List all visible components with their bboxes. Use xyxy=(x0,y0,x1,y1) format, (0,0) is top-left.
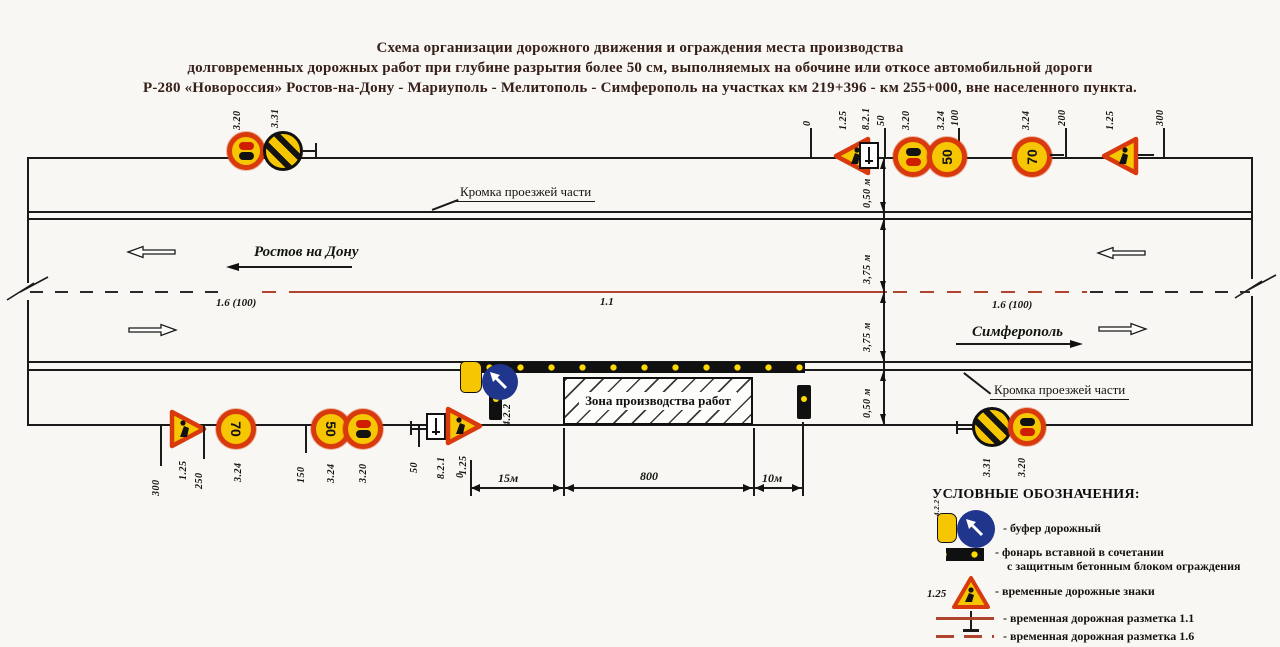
direction-arrow-rostov-head xyxy=(226,263,239,271)
scheme-title-line2: долговременных дорожных работ при глубин… xyxy=(0,60,1280,77)
lantern-post-right xyxy=(797,385,811,419)
kromka-top-line-2 xyxy=(27,218,1253,220)
sign-post-bracket-tr2 xyxy=(1138,154,1154,156)
legend-item-marking-16-text: - временная дорожная разметка 1.6 xyxy=(1003,629,1194,644)
sign-label-bl-8-2-1: 8.2.1 xyxy=(436,449,447,479)
direction-label-simferopol: Симферополь xyxy=(972,324,1063,341)
road-left-border-upper xyxy=(27,157,29,283)
plate-8-2-1-icon-bl xyxy=(426,413,446,440)
sign-label-tr-8-2-1: 8.2.1 xyxy=(861,100,872,130)
station-label-bottom-300: 300 xyxy=(151,466,162,496)
station-label-top-0: 0 xyxy=(802,104,813,126)
legend-marking-1-1-sample xyxy=(936,617,994,620)
sign-3-31-end-restrictions-icon-br xyxy=(972,407,1012,447)
sign-3-20-no-overtaking-icon-br xyxy=(1008,408,1046,446)
plan-dim-label-15m: 15м xyxy=(498,471,518,486)
legend-item-marking-11-text: - временная дорожная разметка 1.1 xyxy=(1003,611,1194,626)
direction-arrow-rostov-line xyxy=(234,266,352,268)
kromka-top-line-1 xyxy=(27,211,1253,213)
station-tick-bottom-250[interactable] xyxy=(203,426,205,459)
station-tick-top-200[interactable] xyxy=(1065,128,1067,158)
sign-post-tick-tl xyxy=(315,143,317,158)
plan-dim-arrow-2 xyxy=(553,484,562,492)
legend-sign-1-25-label: 1.25 xyxy=(927,588,946,600)
station-label-bottom-250: 250 xyxy=(194,459,205,489)
sign-3-20-no-overtaking-icon-bl xyxy=(343,409,383,449)
marking-1-6-right-black xyxy=(1090,291,1250,293)
station-tick-bottom-50[interactable] xyxy=(418,426,420,447)
cross-dim-label-shoulder-top: 0,50 м xyxy=(862,166,873,208)
plate-8-2-1-icon xyxy=(859,142,879,169)
legend-title: УСЛОВНЫЕ ОБОЗНАЧЕНИЯ: xyxy=(932,487,1140,503)
marking-label-right: 1.6 (100) xyxy=(992,299,1032,311)
sign-label-tr-3-24-70: 3.24 xyxy=(1021,102,1032,130)
legend-item-lantern-text2: с защитным бетонным блоком ограждения xyxy=(1007,559,1241,574)
legend-sign-4-2-2-icon xyxy=(957,510,995,548)
traffic-scheme-canvas: Схема организации дорожного движения и о… xyxy=(0,0,1280,647)
cross-dim-arrow-5 xyxy=(880,294,886,303)
scheme-title-line1: Схема организации дорожного движения и о… xyxy=(0,40,1280,57)
sign-label-tr-1-25-2: 1.25 xyxy=(1105,102,1116,130)
lane-arrow-right-outline xyxy=(126,323,178,337)
road-right-border-upper xyxy=(1251,157,1253,279)
cross-dim-arrow-4 xyxy=(880,281,886,290)
plan-dim-arrow-4 xyxy=(743,484,752,492)
plan-dim-label-10m: 10м xyxy=(762,471,782,486)
cross-dim-arrow-7 xyxy=(880,372,886,381)
marking-label-left: 1.6 (100) xyxy=(216,297,256,309)
plan-dim-label-800: 800 xyxy=(640,469,658,484)
sign-1-25-roadworks-icon-2 xyxy=(1098,136,1140,176)
sign-label-4-2-2: 4.2.2 xyxy=(502,394,513,426)
sign-label-bl-1-25: 1.25 xyxy=(178,452,189,480)
marking-1-6-right-red xyxy=(893,291,1087,293)
lane-arrow-left-outline-2 xyxy=(1096,246,1148,260)
sign-3-24-speed-limit-70-icon: 70 xyxy=(1012,137,1052,177)
sign-label-tl-3-31: 3.31 xyxy=(270,100,281,128)
sign-label-bl-3-24-70: 3.24 xyxy=(233,454,244,482)
direction-label-rostov: Ростов на Дону xyxy=(254,244,359,261)
lantern-dot-right xyxy=(801,396,807,402)
road-right-border-lower xyxy=(1251,296,1253,426)
marking-label-center: 1.1 xyxy=(600,296,614,308)
legend-item-signs-text: - временные дорожные знаки xyxy=(995,584,1155,599)
kromka-label-top: Кромка проезжей части xyxy=(456,184,595,202)
sign-label-bl-3-20: 3.20 xyxy=(358,455,369,483)
sign-3-24-speed-limit-50-icon: 50 xyxy=(927,137,967,177)
work-zone-label: Зона производства работ xyxy=(579,392,737,410)
station-tick-top-50[interactable] xyxy=(884,128,886,158)
station-tick-bottom-150[interactable] xyxy=(305,426,307,453)
sign-label-tr-3-20: 3.20 xyxy=(901,102,912,130)
marking-1-6-left-red xyxy=(262,291,304,293)
road-buffer-block xyxy=(460,361,482,393)
legend-sign-post-base xyxy=(963,629,979,632)
marking-1-1-solid xyxy=(303,291,887,293)
station-tick-top-0[interactable] xyxy=(810,128,812,158)
station-tick-bottom-300[interactable] xyxy=(160,426,162,466)
station-label-bottom-150: 150 xyxy=(296,453,307,483)
cross-dim-label-lane-top: 3,75 м xyxy=(862,230,873,284)
road-left-border-lower xyxy=(27,300,29,426)
kromka-leader-bottom xyxy=(964,372,992,394)
station-label-top-50: 50 xyxy=(876,98,887,126)
cross-dim-arrow-2 xyxy=(880,202,886,211)
road-break-symbol-right xyxy=(1234,274,1278,300)
station-label-top-100: 100 xyxy=(950,94,961,126)
station-label-top-300: 300 xyxy=(1155,94,1166,126)
sign-label-br-3-20: 3.20 xyxy=(1017,449,1028,477)
plan-dim-line xyxy=(470,487,803,489)
cross-dim-arrow-1 xyxy=(880,160,886,169)
cross-dim-label-shoulder-bottom: 0,50 м xyxy=(862,374,873,418)
direction-arrow-simferopol-line xyxy=(956,343,1074,345)
sign-3-24-speed-limit-70-icon-bl: 70 xyxy=(216,409,256,449)
road-break-symbol-left xyxy=(6,276,50,302)
sign-3-20-no-overtaking-icon xyxy=(227,132,265,170)
plan-dim-arrow-6 xyxy=(792,484,801,492)
sign-1-25-roadworks-icon-bl2 xyxy=(444,406,486,446)
road-top-edge-line xyxy=(27,157,1253,159)
legend-sign-post xyxy=(970,611,972,629)
cross-dim-arrow-3 xyxy=(880,221,886,230)
legend-lantern-icon xyxy=(946,548,984,561)
lane-arrow-right-outline-2 xyxy=(1096,322,1148,336)
lane-arrow-left-outline xyxy=(126,245,178,259)
sign-label-bl-3-24-50: 3.24 xyxy=(326,455,337,483)
sign-post-bracket-tr1 xyxy=(1050,154,1064,156)
station-label-top-200: 200 xyxy=(1057,94,1068,126)
legend-marking-1-6-sample xyxy=(936,635,994,638)
legend-item-buffer-text: - буфер дорожный xyxy=(1003,521,1101,536)
station-label-bottom-0: 0 xyxy=(455,462,466,478)
kromka-leader-top xyxy=(432,199,459,210)
plan-dim-arrow-3 xyxy=(565,484,574,492)
legend-item-lantern-text: - фонарь вставной в сочетании xyxy=(995,545,1164,560)
sign-label-tr-3-24-50: 3.24 xyxy=(936,102,947,130)
station-tick-top-300[interactable] xyxy=(1163,128,1165,158)
sign-label-br-3-31: 3.31 xyxy=(982,449,993,477)
cross-dim-line xyxy=(883,159,885,424)
legend-sign-1-25-icon xyxy=(951,575,991,611)
kromka-label-bottom: Кромка проезжей части xyxy=(990,382,1129,400)
sign-label-tr-1-25: 1.25 xyxy=(838,102,849,130)
legend-buffer-block-icon xyxy=(937,513,957,543)
dim-ext-line-end xyxy=(802,422,804,496)
marking-1-6-left-black xyxy=(30,291,230,293)
sign-3-31-end-restrictions-icon xyxy=(263,131,303,171)
cross-dim-arrow-8 xyxy=(880,414,886,423)
sign-label-tl-3-20: 3.20 xyxy=(232,102,243,130)
cross-dim-label-lane-bottom: 3,75 м xyxy=(862,298,873,352)
plan-dim-arrow-1 xyxy=(471,484,480,492)
scheme-title-line3: Р-280 «Новороссия» Ростов-на-Дону - Мари… xyxy=(0,80,1280,97)
work-zone-box: Зона производства работ xyxy=(563,377,753,425)
direction-arrow-simferopol-head xyxy=(1070,340,1083,348)
cross-dim-arrow-6 xyxy=(880,351,886,360)
station-label-bottom-50: 50 xyxy=(409,447,420,473)
